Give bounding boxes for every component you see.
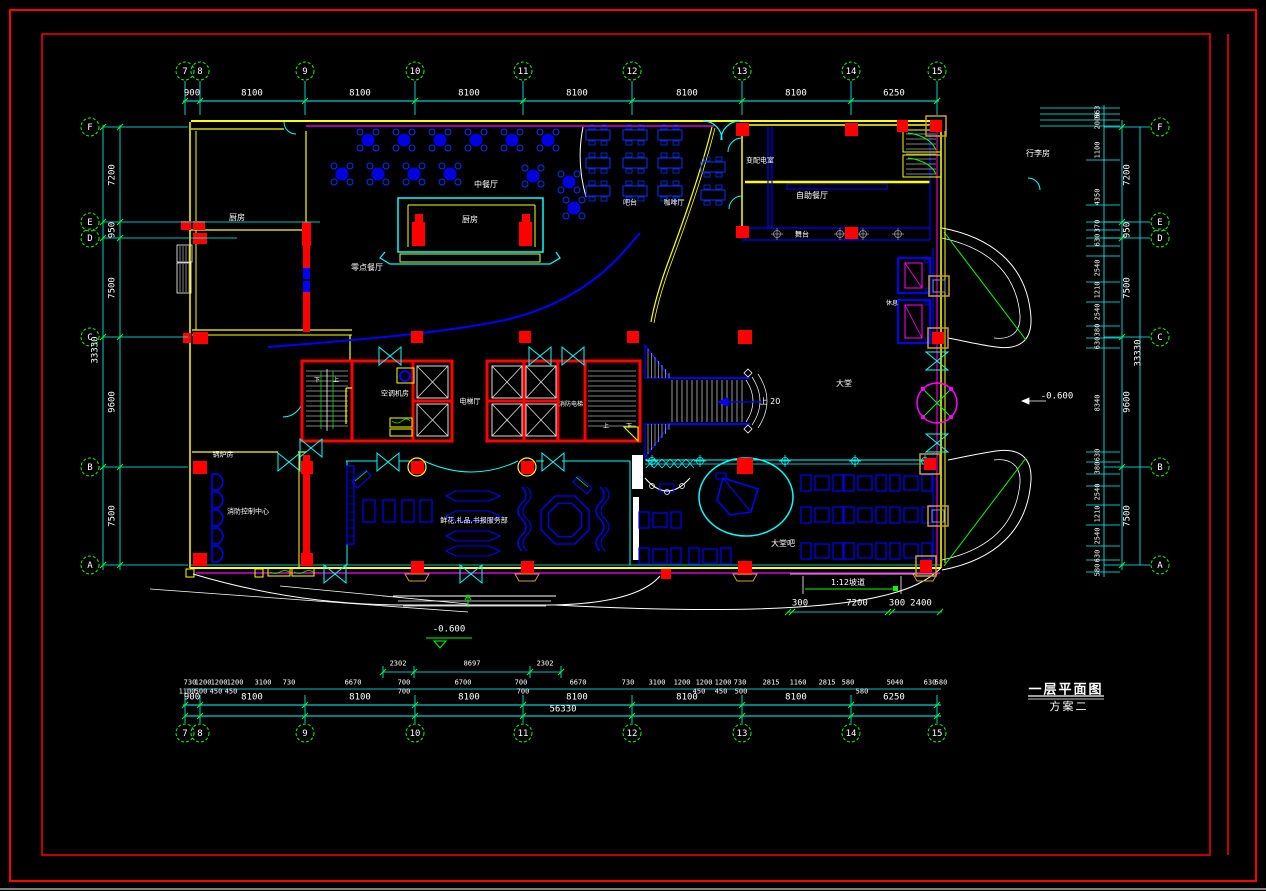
grid-bubble-label: 15	[932, 729, 943, 739]
stair-up-label: 上	[333, 378, 339, 384]
room-label-alacarte: 零点餐厅	[351, 264, 383, 272]
dim-bottom-small2: 500	[195, 689, 208, 696]
dim-ramp: 300	[792, 600, 808, 609]
dim-bottom-small: 580	[935, 680, 948, 687]
grid-bubble-label: F	[87, 123, 92, 133]
room-label-kitchen: 厨房	[229, 214, 245, 222]
room-label-cafe: 咖啡厅	[664, 200, 685, 207]
grid-and-dimension-lines: 778899101011111212131314141515FFEEDDCCBB…	[81, 62, 1169, 742]
room-label-ac-room: 空调机房	[381, 391, 409, 398]
dim-top: 8100	[785, 90, 807, 99]
room-label-elevator-hall: 电梯厅	[460, 399, 481, 406]
room-label-boiler: 锅炉房	[213, 452, 234, 459]
dim-bottom-900: 8100	[241, 694, 263, 703]
dim-top: 8100	[676, 90, 698, 99]
dim-bottom-small: 3100	[255, 680, 272, 687]
dim-top: 6250	[883, 90, 905, 99]
grid-bubble-label: 12	[627, 729, 638, 739]
dim-right-detail: 2540	[1095, 304, 1102, 321]
dim-right-detail: 630	[1095, 234, 1102, 247]
dim-top: 8100	[241, 90, 263, 99]
walls	[177, 121, 957, 577]
ramp-slope-label: 1:12坡道	[831, 579, 865, 587]
dim-top: 900	[184, 90, 200, 99]
room-label-shop: 鲜花,礼品,书报服务部	[440, 518, 507, 525]
dim-ramp: 2400	[910, 600, 932, 609]
dim-bottom-small: 2815	[763, 680, 780, 687]
dim-bottom-upper: 8697	[464, 661, 481, 668]
grid-bubble-label: 14	[846, 729, 857, 739]
grid-bubble-label: A	[1157, 561, 1163, 571]
room-label-stage-kitchen: 厨房	[462, 216, 478, 224]
site-lines	[150, 178, 1040, 612]
overall-dim-bottom: 56330	[549, 706, 576, 715]
dim-bottom-small: 1200	[696, 680, 713, 687]
grid-bubble-label: 12	[627, 67, 638, 77]
grid-bubble-label: D	[87, 234, 92, 244]
dim-right-detail: 2540	[1095, 528, 1102, 545]
dim-top: 8100	[458, 90, 480, 99]
dim-right-detail: 370	[1095, 220, 1102, 233]
dim-bottom-900: 8100	[458, 694, 480, 703]
room-label-luggage: 行李房	[1026, 150, 1050, 158]
grand-stair-up-annotation: 上 20	[760, 398, 781, 406]
floor-plan-drawing: 778899101011111212131314141515FFEEDDCCBB…	[0, 0, 1266, 891]
dim-right-detail: 4350	[1095, 189, 1102, 206]
dim-bottom-small2: 700	[517, 689, 530, 696]
dim-right-chain: 7500	[1124, 505, 1133, 527]
dim-bottom-small: 3100	[649, 680, 666, 687]
dim-bottom-small: 6670	[570, 680, 587, 687]
room-label-lobby-bar: 大堂吧	[771, 540, 795, 548]
dim-ramp: 300	[889, 600, 905, 609]
dim-bottom-small: 700	[398, 680, 411, 687]
dim-bottom-small: 730	[622, 680, 635, 687]
stair-down-label: 下	[626, 424, 632, 430]
dim-bottom-small: 6700	[455, 680, 472, 687]
dim-bottom-small2: 700	[398, 689, 411, 696]
dim-bottom-900: 6250	[883, 694, 905, 703]
dim-bottom-small: 730	[734, 680, 747, 687]
grid-bubble-label: B	[1157, 463, 1162, 473]
dim-bottom-900: 8100	[785, 694, 807, 703]
dim-right-detail: 630	[1095, 550, 1102, 563]
stair-up-label: 上	[603, 424, 609, 430]
dim-bottom-small: 1200	[195, 680, 212, 687]
dim-right-detail: 8340	[1095, 395, 1102, 412]
grid-bubble-label: 7	[182, 67, 187, 77]
drawing-subtitle: 方案二	[1050, 698, 1089, 714]
dim-left-chain: 9600	[109, 391, 118, 413]
overall-dim-right: 33330	[1135, 339, 1144, 366]
grid-bubble-label: 10	[410, 67, 421, 77]
grid-bubble-label: E	[1157, 218, 1162, 228]
grid-bubble-label: 13	[737, 67, 748, 77]
dim-bottom-small: 1160	[790, 680, 807, 687]
dim-bottom-small2: 450	[210, 689, 223, 696]
grid-bubble-label: D	[1157, 234, 1162, 244]
dim-bottom-small2: 450	[693, 689, 706, 696]
drawing-title: 一层平面图	[1028, 679, 1103, 698]
dim-right-detail: 2000	[1095, 113, 1102, 130]
grid-bubble-label: A	[87, 561, 93, 571]
room-label-fire-elevator: 消防电梯	[559, 402, 583, 408]
dim-right-chain: 7500	[1124, 277, 1133, 299]
dim-bottom-small2: 450	[225, 689, 238, 696]
grid-bubble-label: 13	[737, 729, 748, 739]
grid-bubble-label: 11	[518, 729, 529, 739]
dim-bottom-small: 2815	[819, 680, 836, 687]
dim-right-detail: 2540	[1095, 484, 1102, 501]
dim-bottom-small2: 450	[715, 689, 728, 696]
grid-bubble-label: B	[87, 463, 92, 473]
room-label-power-room: 变配电室	[746, 158, 774, 165]
cad-floorplan-sheet: 778899101011111212131314141515FFEEDDCCBB…	[0, 0, 1266, 891]
dim-bottom-upper: 2302	[537, 661, 554, 668]
dim-right-chain: 950	[1124, 222, 1133, 238]
dim-bottom-900: 8100	[566, 694, 588, 703]
dim-right-detail: 580	[1095, 564, 1102, 577]
dim-left-chain: 950	[109, 222, 118, 238]
grid-bubble-label: 8	[197, 729, 202, 739]
dim-left-chain: 7500	[109, 277, 118, 299]
overall-dim-left: 33330	[92, 336, 101, 363]
grid-bubble-label: 15	[932, 67, 943, 77]
room-label-lobby: 大堂	[836, 380, 852, 388]
dim-bottom-small: 730	[283, 680, 296, 687]
grid-bubble-label: 9	[302, 729, 307, 739]
grid-bubble-label: 10	[410, 729, 421, 739]
dim-left-chain: 7500	[109, 505, 118, 527]
room-label-fire-control: 消防控制中心	[227, 509, 269, 516]
dim-bottom-small: 1200	[674, 680, 691, 687]
dim-ramp: 7200	[846, 600, 868, 609]
level-annotation-front: -0.600	[433, 626, 466, 635]
dim-right-detail: 630	[1095, 337, 1102, 350]
level-annotation-side: -0.600	[1041, 393, 1074, 402]
dim-bottom-small2: 500	[735, 689, 748, 696]
dim-bottom-small: 1200	[211, 680, 228, 687]
dim-right-detail: 2540	[1095, 260, 1102, 277]
room-label-chinese-restaurant: 中餐厅	[474, 181, 498, 189]
grid-bubble-label: E	[87, 218, 92, 228]
dim-bottom-900: 8100	[349, 694, 371, 703]
dim-bottom-upper: 2302	[390, 661, 407, 668]
grid-bubble-label: 7	[182, 729, 187, 739]
grid-bubble-label: 11	[518, 67, 529, 77]
core-walls-stairs-elevators	[302, 345, 767, 458]
dim-bottom-small: 1200	[227, 680, 244, 687]
dim-bottom-small: 6670	[345, 680, 362, 687]
dim-bottom-small2: 580	[856, 689, 869, 696]
dim-right-detail: 1100	[1095, 142, 1102, 159]
dim-bottom-small2: 1100	[179, 689, 196, 696]
dim-bottom-small: 700	[515, 680, 528, 687]
room-label-bar: 吧台	[623, 200, 637, 207]
grid-bubble-label: 8	[197, 67, 202, 77]
dim-bottom-small: 580	[842, 680, 855, 687]
room-label-buffet: 自助餐厅	[796, 192, 828, 200]
dim-top: 8100	[566, 90, 588, 99]
dim-right-chain: 7200	[1124, 164, 1133, 186]
dim-right-detail: 1210	[1095, 282, 1102, 299]
dim-right-detail: 380	[1095, 324, 1102, 337]
stair-down-label: 下	[314, 378, 320, 384]
dim-right-detail: 380	[1095, 462, 1102, 475]
grid-bubble-label: 14	[846, 67, 857, 77]
room-label-rest: 休息	[886, 301, 898, 307]
dim-right-detail: 630	[1095, 449, 1102, 462]
dim-top: 8100	[349, 90, 371, 99]
dim-right-chain: 9600	[1124, 391, 1133, 413]
dim-right-detail: 1210	[1095, 506, 1102, 523]
grid-bubble-label: F	[1157, 123, 1162, 133]
dim-bottom-small: 1200	[715, 680, 732, 687]
grid-bubble-label: 9	[302, 67, 307, 77]
dim-left-chain: 7200	[109, 164, 118, 186]
grid-bubble-label: C	[1157, 333, 1162, 343]
room-label-stage: 舞台	[795, 232, 809, 239]
dim-bottom-small: 5040	[887, 680, 904, 687]
